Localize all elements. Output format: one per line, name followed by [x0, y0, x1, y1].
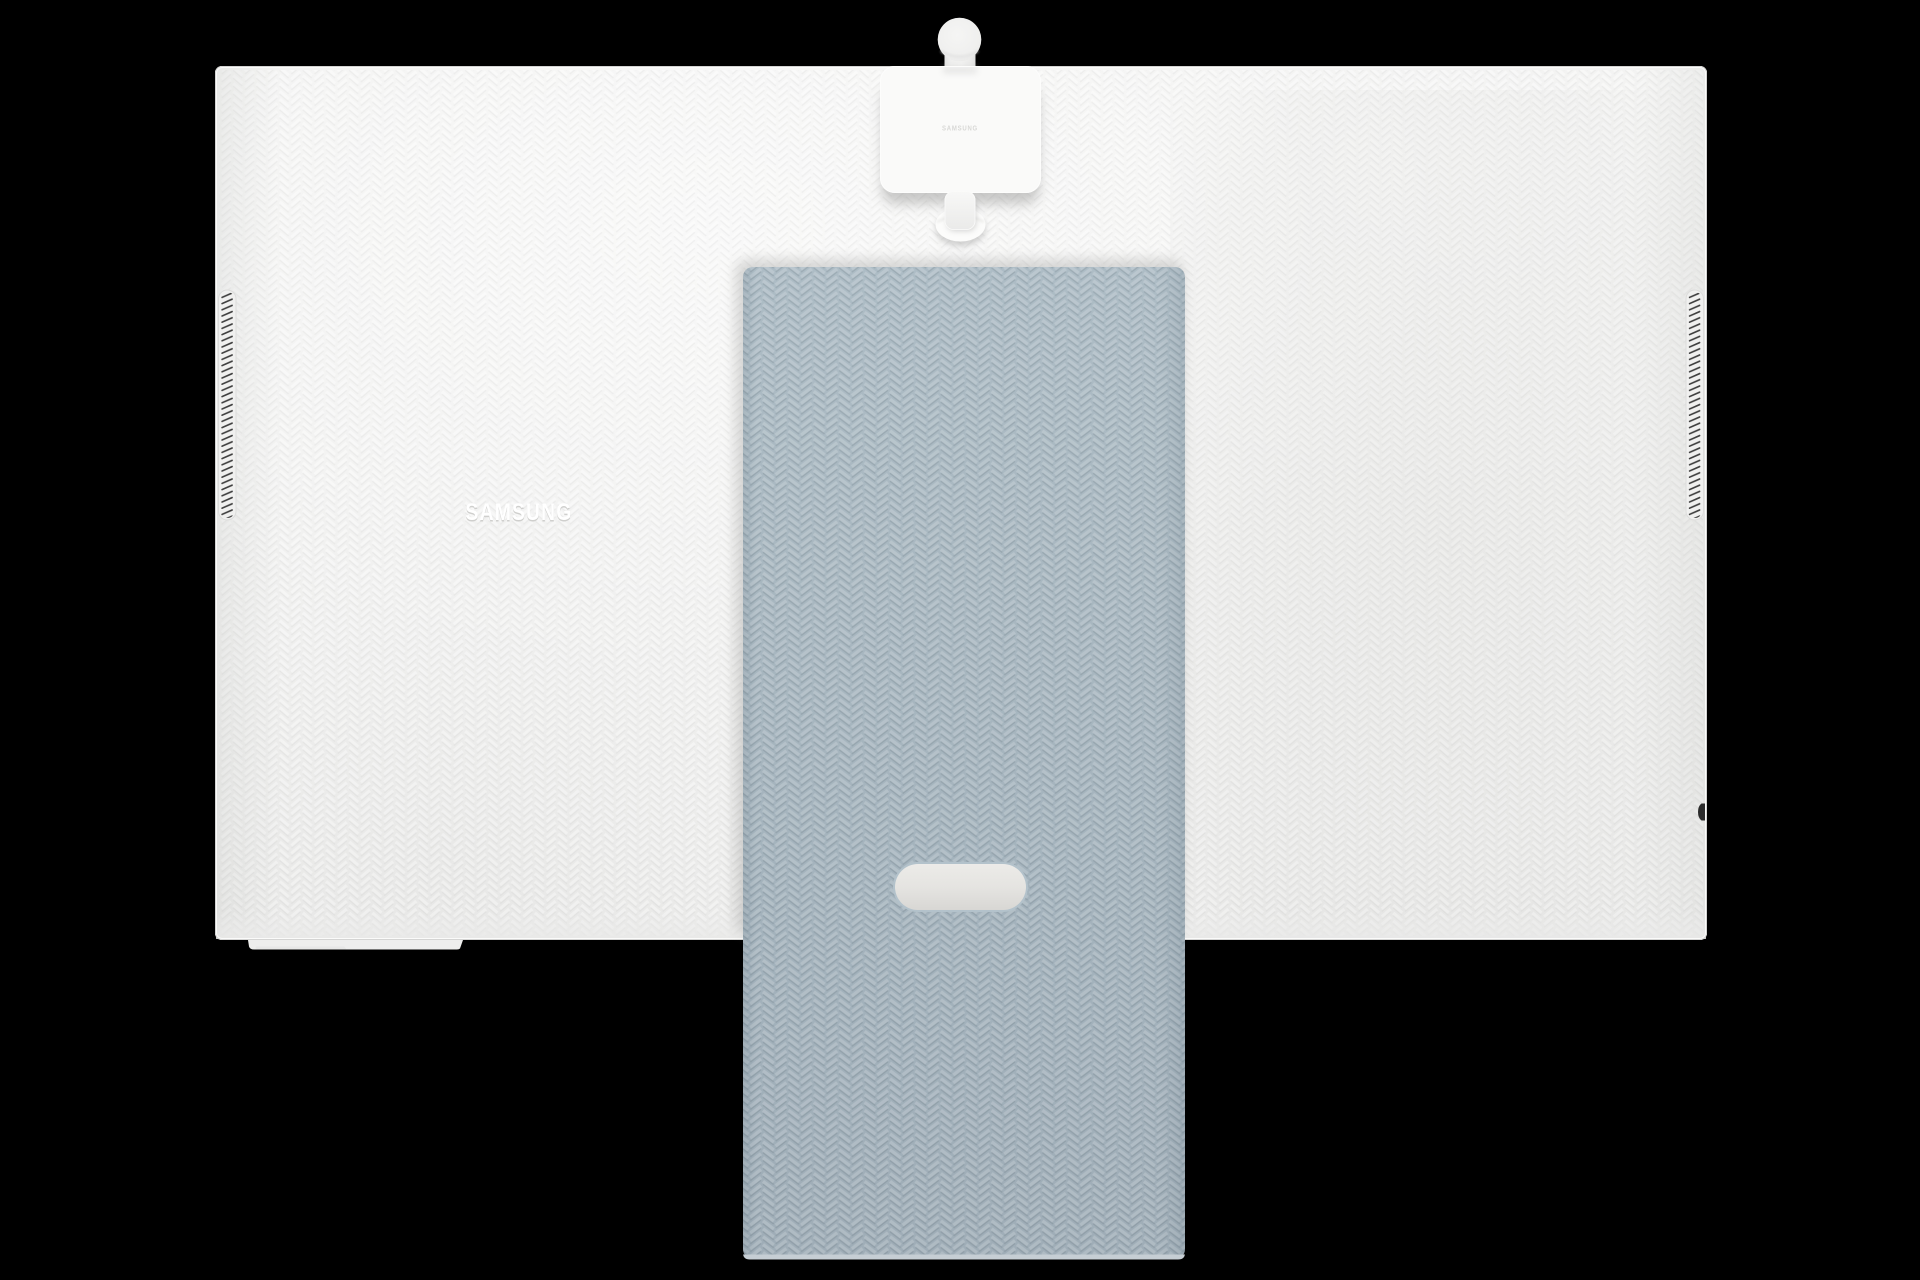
svg-text:SAMSUNG: SAMSUNG	[942, 126, 978, 133]
svg-text:SAMSUNG: SAMSUNG	[466, 499, 573, 526]
